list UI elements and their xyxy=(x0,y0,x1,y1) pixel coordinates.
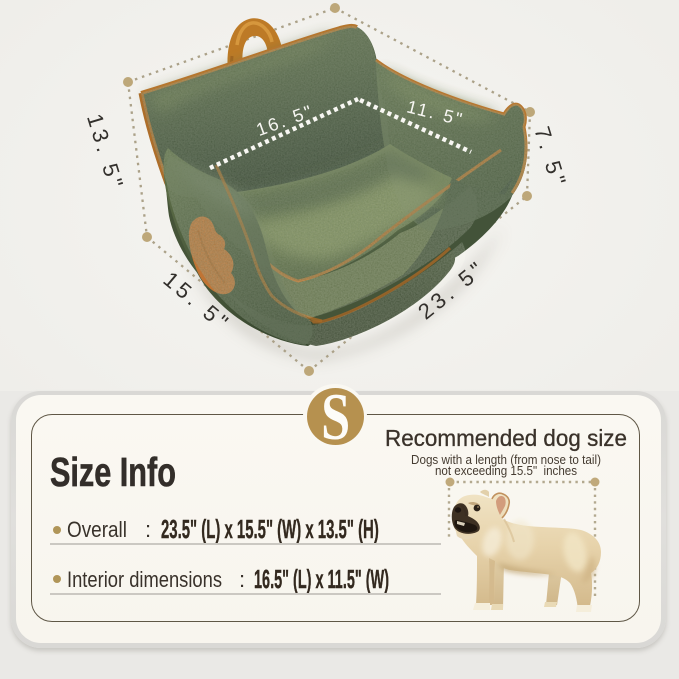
svg-text:13. 5": 13. 5" xyxy=(82,111,129,194)
svg-text:7. 5": 7. 5" xyxy=(529,123,571,191)
